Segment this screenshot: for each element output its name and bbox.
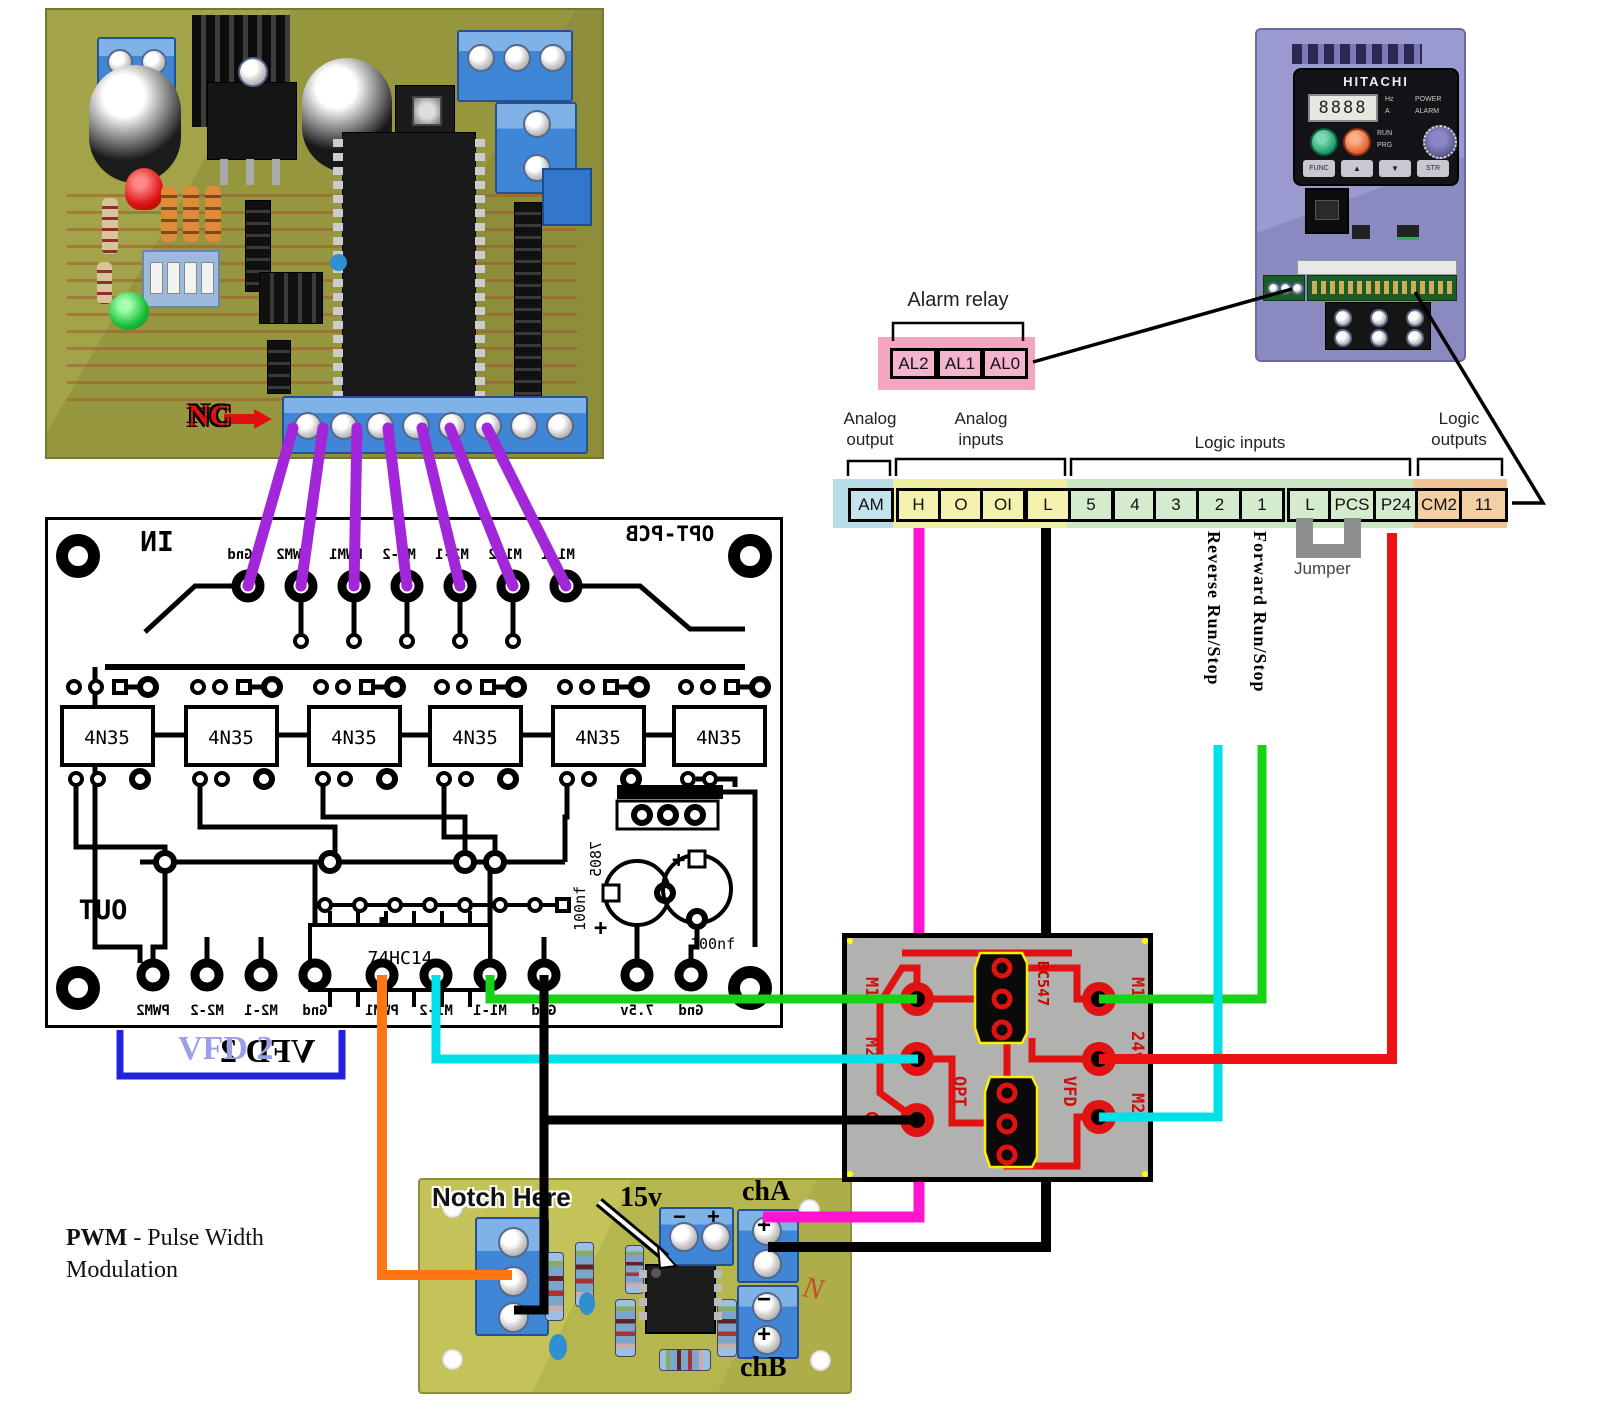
run-button[interactable] [1310,128,1338,156]
vfd-inverter-photo: HITACHI 8888 Hz A POWER ALARM RUN PRG FU… [1255,28,1466,362]
stop-reset-button[interactable] [1343,128,1371,156]
brand-label: HITACHI [1295,74,1457,89]
str-button[interactable]: STR [1417,160,1449,177]
silk-7805: 7805 [587,841,605,877]
adapter-board: BC547 M1 M2 G OPT VFD M1 24v M2 [842,933,1153,1182]
silk-out: OUT [79,895,128,926]
silk-100nf: 100nf [571,886,589,931]
svg-text:M2: M2 [861,1037,881,1057]
svg-text:4N35: 4N35 [331,727,377,749]
terminal-pcs[interactable]: PCS [1328,488,1376,522]
terminal-11[interactable]: 11 [1459,488,1508,522]
top-pad-labels: Gnd PWM2 PWM1 M2-2 M2-1 M1-2 M1-1 [227,547,575,563]
svg-text:Gnd: Gnd [227,547,252,563]
svg-text:M2: M2 [1127,1093,1147,1113]
run-led-label: RUN [1377,130,1392,137]
channel-a-label: chA [742,1176,790,1208]
svg-text:24v: 24v [1127,1031,1147,1062]
prg-led-label: PRG [1377,142,1392,149]
power-indicator: POWER [1415,96,1441,103]
terminal-p24[interactable]: P24 [1373,488,1419,522]
svg-text:M1-1: M1-1 [541,547,575,563]
svg-text:PWM2: PWM2 [276,547,310,563]
pwm-definition: - Pulse Width [127,1225,264,1251]
control-terminal-strip[interactable] [1307,275,1457,301]
svg-text:M1: M1 [1127,977,1147,997]
hz-indicator: Hz [1385,96,1394,103]
up-button[interactable]: ▲ [1341,160,1373,177]
svg-text:M1-1: M1-1 [473,1003,507,1019]
terminal-5[interactable]: 5 [1068,488,1114,522]
voltage-label: 15v [620,1182,662,1214]
svg-text:Gnd: Gnd [302,1003,327,1019]
pwm-term: PWM [66,1225,127,1251]
nc-label: NC [188,399,231,433]
terminal-oi[interactable]: OI [980,488,1026,522]
silk-plus: + [594,916,607,941]
terminal-2[interactable]: 2 [1196,488,1243,522]
vent-slots [1292,44,1422,64]
svg-text:4N35: 4N35 [696,727,742,749]
pwm-note: PWM - Pulse Width Modulation [66,1222,264,1286]
svg-text:M1-2: M1-2 [419,1003,453,1019]
reverse-run-stop-label: Reverse Run/Stop [1203,531,1224,736]
label-strip [1297,260,1457,275]
terminal-3[interactable]: 3 [1153,488,1199,522]
mount-ring [62,972,94,1004]
svg-text:4N35: 4N35 [84,727,130,749]
wiring-diagram: NC IN OPT-PCB OUT Gnd PWM2 PWM1 M2-2 M2-… [0,0,1600,1411]
svg-text:4N35: 4N35 [208,727,254,749]
svg-text:7.5v: 7.5v [620,1003,654,1019]
notch-here-label: Notch Here [432,1182,571,1213]
svg-text:M2-2: M2-2 [190,1003,224,1019]
terminal-l-analog[interactable]: L [1025,488,1071,522]
speed-potentiometer[interactable] [1423,125,1457,159]
rj45-port[interactable] [1305,188,1349,234]
jumper-block [1397,225,1419,240]
silk-plus: + [672,848,685,873]
svg-text:M1-2: M1-2 [488,547,522,563]
forward-run-stop-label: Forward Run/Stop [1249,531,1270,736]
mount-ring [62,540,94,572]
down-button[interactable]: ▼ [1379,160,1411,177]
jumper-block [1352,225,1370,239]
mount-ring [734,972,766,1004]
relay-terminal-block[interactable] [1263,275,1305,301]
svg-text:M2-1: M2-1 [244,1003,278,1019]
terminal-al1[interactable]: AL1 [937,348,983,379]
svg-text:VFD: VFD [1059,1076,1079,1107]
led-display: 8888 [1308,94,1378,122]
svg-text:M1: M1 [861,977,881,997]
jumper-shunt[interactable] [1296,518,1361,558]
mount-ring [734,540,766,572]
terminal-al2[interactable]: AL2 [890,348,937,379]
svg-text:PWM1: PWM1 [329,547,363,563]
alarm-relay-box: AL2 AL1 AL0 [878,337,1035,390]
terminal-o[interactable]: O [938,488,984,522]
channel-b-label: chB [740,1352,787,1384]
alarm-indicator: ALARM [1415,108,1439,115]
svg-text:M2-2: M2-2 [382,547,416,563]
svg-text:M2-1: M2-1 [435,547,469,563]
terminal-l-logic[interactable]: L [1287,488,1333,522]
svg-text:BC547: BC547 [1034,961,1052,1006]
svg-text:PWM1: PWM1 [365,1003,399,1019]
terminal-am[interactable]: AM [848,488,894,522]
terminal-1[interactable]: 1 [1239,488,1285,522]
svg-text:OPT: OPT [949,1076,969,1107]
silk-in: IN [140,525,174,558]
amp-indicator: A [1385,108,1390,115]
transistor-bc547 [985,1077,1037,1167]
input-pads [236,574,578,598]
silk-100nf: 100nf [690,935,735,953]
terminal-al0[interactable]: AL0 [982,348,1028,379]
svg-text:4N35: 4N35 [452,727,498,749]
svg-text:G: G [861,1111,881,1121]
terminal-4[interactable]: 4 [1112,488,1158,522]
power-terminal-block[interactable] [1325,302,1431,350]
jumper-label: Jumper [1294,559,1351,579]
opt-pcb-layout: IN OPT-PCB OUT Gnd PWM2 PWM1 M2-2 M2-1 M… [45,517,783,1028]
driver-board-photo: − + + − + N Notch Here 15v chA chB [418,1178,852,1394]
terminal-cm2[interactable]: CM2 [1415,488,1463,522]
control-panel: HITACHI 8888 Hz A POWER ALARM RUN PRG FU… [1293,68,1459,186]
svg-text:PWM2: PWM2 [136,1003,170,1019]
pwm-line2: Modulation [66,1257,178,1283]
vfd2-label: VFD 2 [178,1030,273,1068]
svg-text:4N35: 4N35 [575,727,621,749]
svg-text:Gnd: Gnd [531,1003,556,1019]
silk-title: OPT-PCB [626,522,715,546]
func-button[interactable]: FUNC [1303,160,1335,177]
svg-text:Gnd: Gnd [678,1003,703,1019]
terminal-h[interactable]: H [896,488,941,522]
